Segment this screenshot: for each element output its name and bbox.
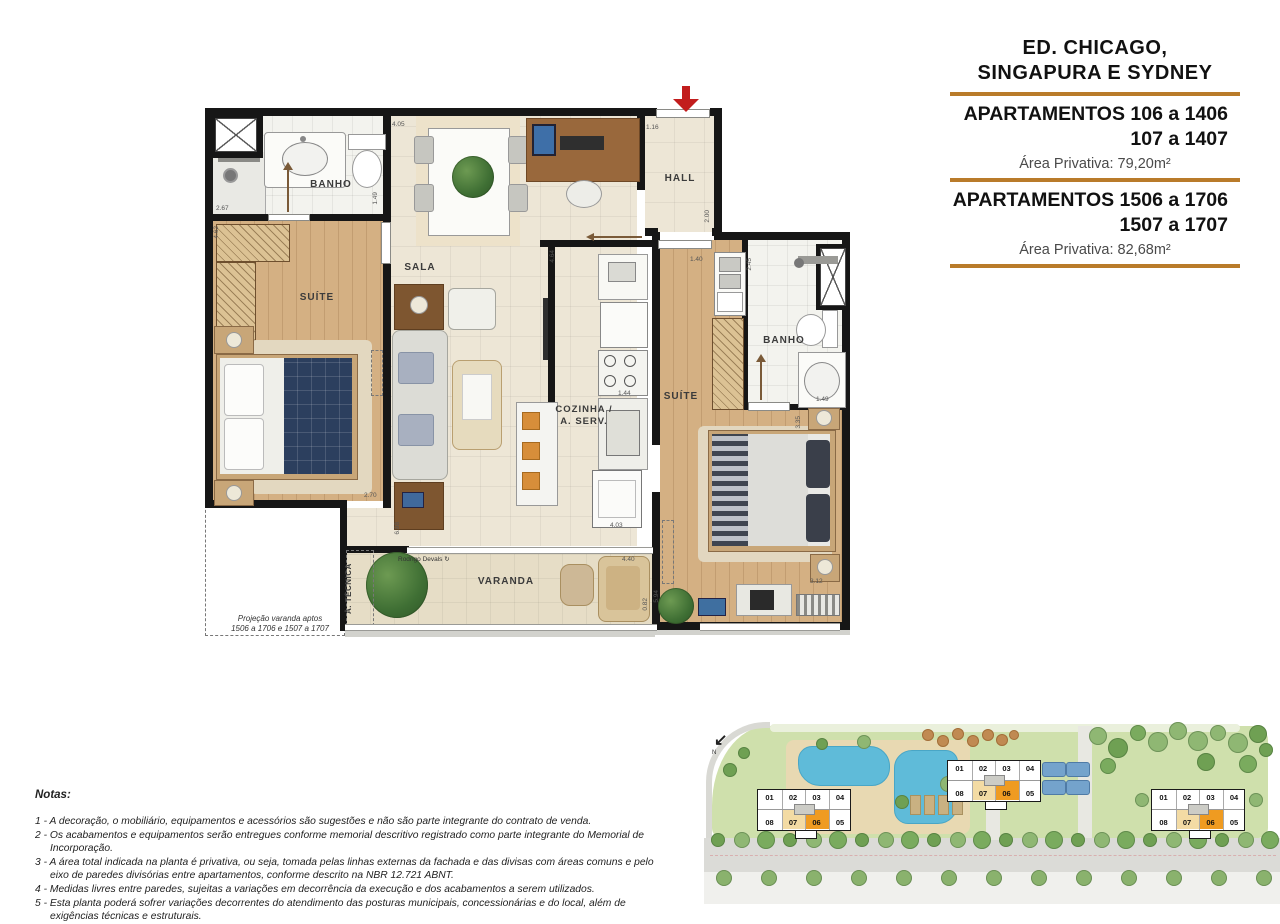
tree-icon (967, 735, 979, 747)
north-arrow-icon: ↙ (714, 730, 727, 750)
pool-lounger (924, 795, 935, 815)
tree-icon (973, 831, 991, 849)
tree-icon (1261, 831, 1279, 849)
building-core (794, 804, 815, 815)
tree-icon (806, 870, 822, 886)
tree-icon (996, 734, 1008, 746)
tree-icon (1045, 831, 1063, 849)
tree-icon (999, 833, 1013, 847)
tree-icon (1228, 733, 1248, 753)
tree-icon (1130, 725, 1146, 741)
parked-car (1042, 762, 1066, 777)
tree-icon (738, 747, 750, 759)
building-entrance-canopy (1189, 830, 1211, 839)
tree-icon (1211, 870, 1227, 886)
unit-number: 01 (1152, 793, 1175, 802)
unit-number: 08 (1152, 818, 1175, 827)
tree-icon (1108, 738, 1128, 758)
tree-icon (937, 735, 949, 747)
tree-icon (896, 870, 912, 886)
unit-number: 08 (948, 789, 971, 798)
pool-lounger (910, 795, 921, 815)
unit-number: 06 (1199, 818, 1222, 827)
tree-icon (1210, 725, 1226, 741)
tree-icon (1256, 870, 1272, 886)
tree-icon (878, 832, 894, 848)
unit-number: 03 (805, 793, 828, 802)
site-building-3: 0102030408070605 (1151, 789, 1245, 831)
tree-icon (1239, 755, 1257, 773)
tree-icon (857, 735, 871, 749)
building-entrance-canopy (795, 830, 817, 839)
tree-icon (761, 870, 777, 886)
tree-icon (1121, 870, 1137, 886)
tree-icon (1197, 753, 1215, 771)
tree-icon (1117, 831, 1135, 849)
tree-icon (986, 870, 1002, 886)
tree-icon (1148, 732, 1168, 752)
tree-icon (922, 729, 934, 741)
unit-number: 02 (782, 793, 805, 802)
tree-icon (901, 831, 919, 849)
unit-number: 06 (805, 818, 828, 827)
tree-icon (711, 833, 725, 847)
tree-icon (855, 833, 869, 847)
tree-icon (927, 833, 941, 847)
tree-icon (1143, 833, 1157, 847)
unit-number: 04 (1019, 764, 1042, 773)
unit-number: 06 (995, 789, 1018, 798)
tree-icon (1009, 730, 1019, 740)
parked-car (1066, 780, 1090, 795)
tree-icon (1169, 722, 1187, 740)
north-label: N (712, 750, 716, 756)
tree-icon (952, 728, 964, 740)
site-building-2: 0102030408070605 (947, 760, 1041, 802)
tree-icon (851, 870, 867, 886)
unit-number: 01 (948, 764, 971, 773)
tree-icon (1094, 832, 1110, 848)
tree-icon (1022, 832, 1038, 848)
unit-number: 01 (758, 793, 781, 802)
tree-icon (1215, 833, 1229, 847)
site-plan: ↙ N 0102030408070605 0102030408070605 01… (0, 0, 1280, 904)
tree-icon (950, 832, 966, 848)
unit-number: 04 (1223, 793, 1246, 802)
unit-number: 07 (1176, 818, 1199, 827)
unit-number: 05 (1223, 818, 1246, 827)
building-entrance-canopy (985, 801, 1007, 810)
unit-number: 05 (1019, 789, 1042, 798)
tree-icon (1071, 833, 1085, 847)
tree-icon (1135, 793, 1149, 807)
tree-icon (1249, 793, 1263, 807)
tree-icon (716, 870, 732, 886)
tree-icon (1249, 725, 1267, 743)
tree-icon (829, 831, 847, 849)
tree-icon (816, 738, 828, 750)
unit-number: 03 (1199, 793, 1222, 802)
unit-number: 07 (972, 789, 995, 798)
tree-icon (1076, 870, 1092, 886)
unit-number: 07 (782, 818, 805, 827)
parked-car (1066, 762, 1090, 777)
unit-number: 04 (829, 793, 852, 802)
site-building-1: 0102030408070605 (757, 789, 851, 831)
tree-icon (941, 870, 957, 886)
tree-icon (723, 763, 737, 777)
tree-icon (1166, 870, 1182, 886)
tree-icon (1031, 870, 1047, 886)
unit-number: 02 (972, 764, 995, 773)
tree-icon (1166, 832, 1182, 848)
tree-icon (1238, 832, 1254, 848)
tree-icon (982, 729, 994, 741)
tree-icon (734, 832, 750, 848)
building-core (1188, 804, 1209, 815)
tree-icon (1100, 758, 1116, 774)
tree-icon (1259, 743, 1273, 757)
unit-number: 08 (758, 818, 781, 827)
tree-icon (757, 831, 775, 849)
unit-number: 05 (829, 818, 852, 827)
building-core (984, 775, 1005, 786)
unit-number: 03 (995, 764, 1018, 773)
tree-icon (895, 795, 909, 809)
unit-number: 02 (1176, 793, 1199, 802)
parked-car (1042, 780, 1066, 795)
tree-icon (1089, 727, 1107, 745)
tree-icon (1188, 731, 1208, 751)
